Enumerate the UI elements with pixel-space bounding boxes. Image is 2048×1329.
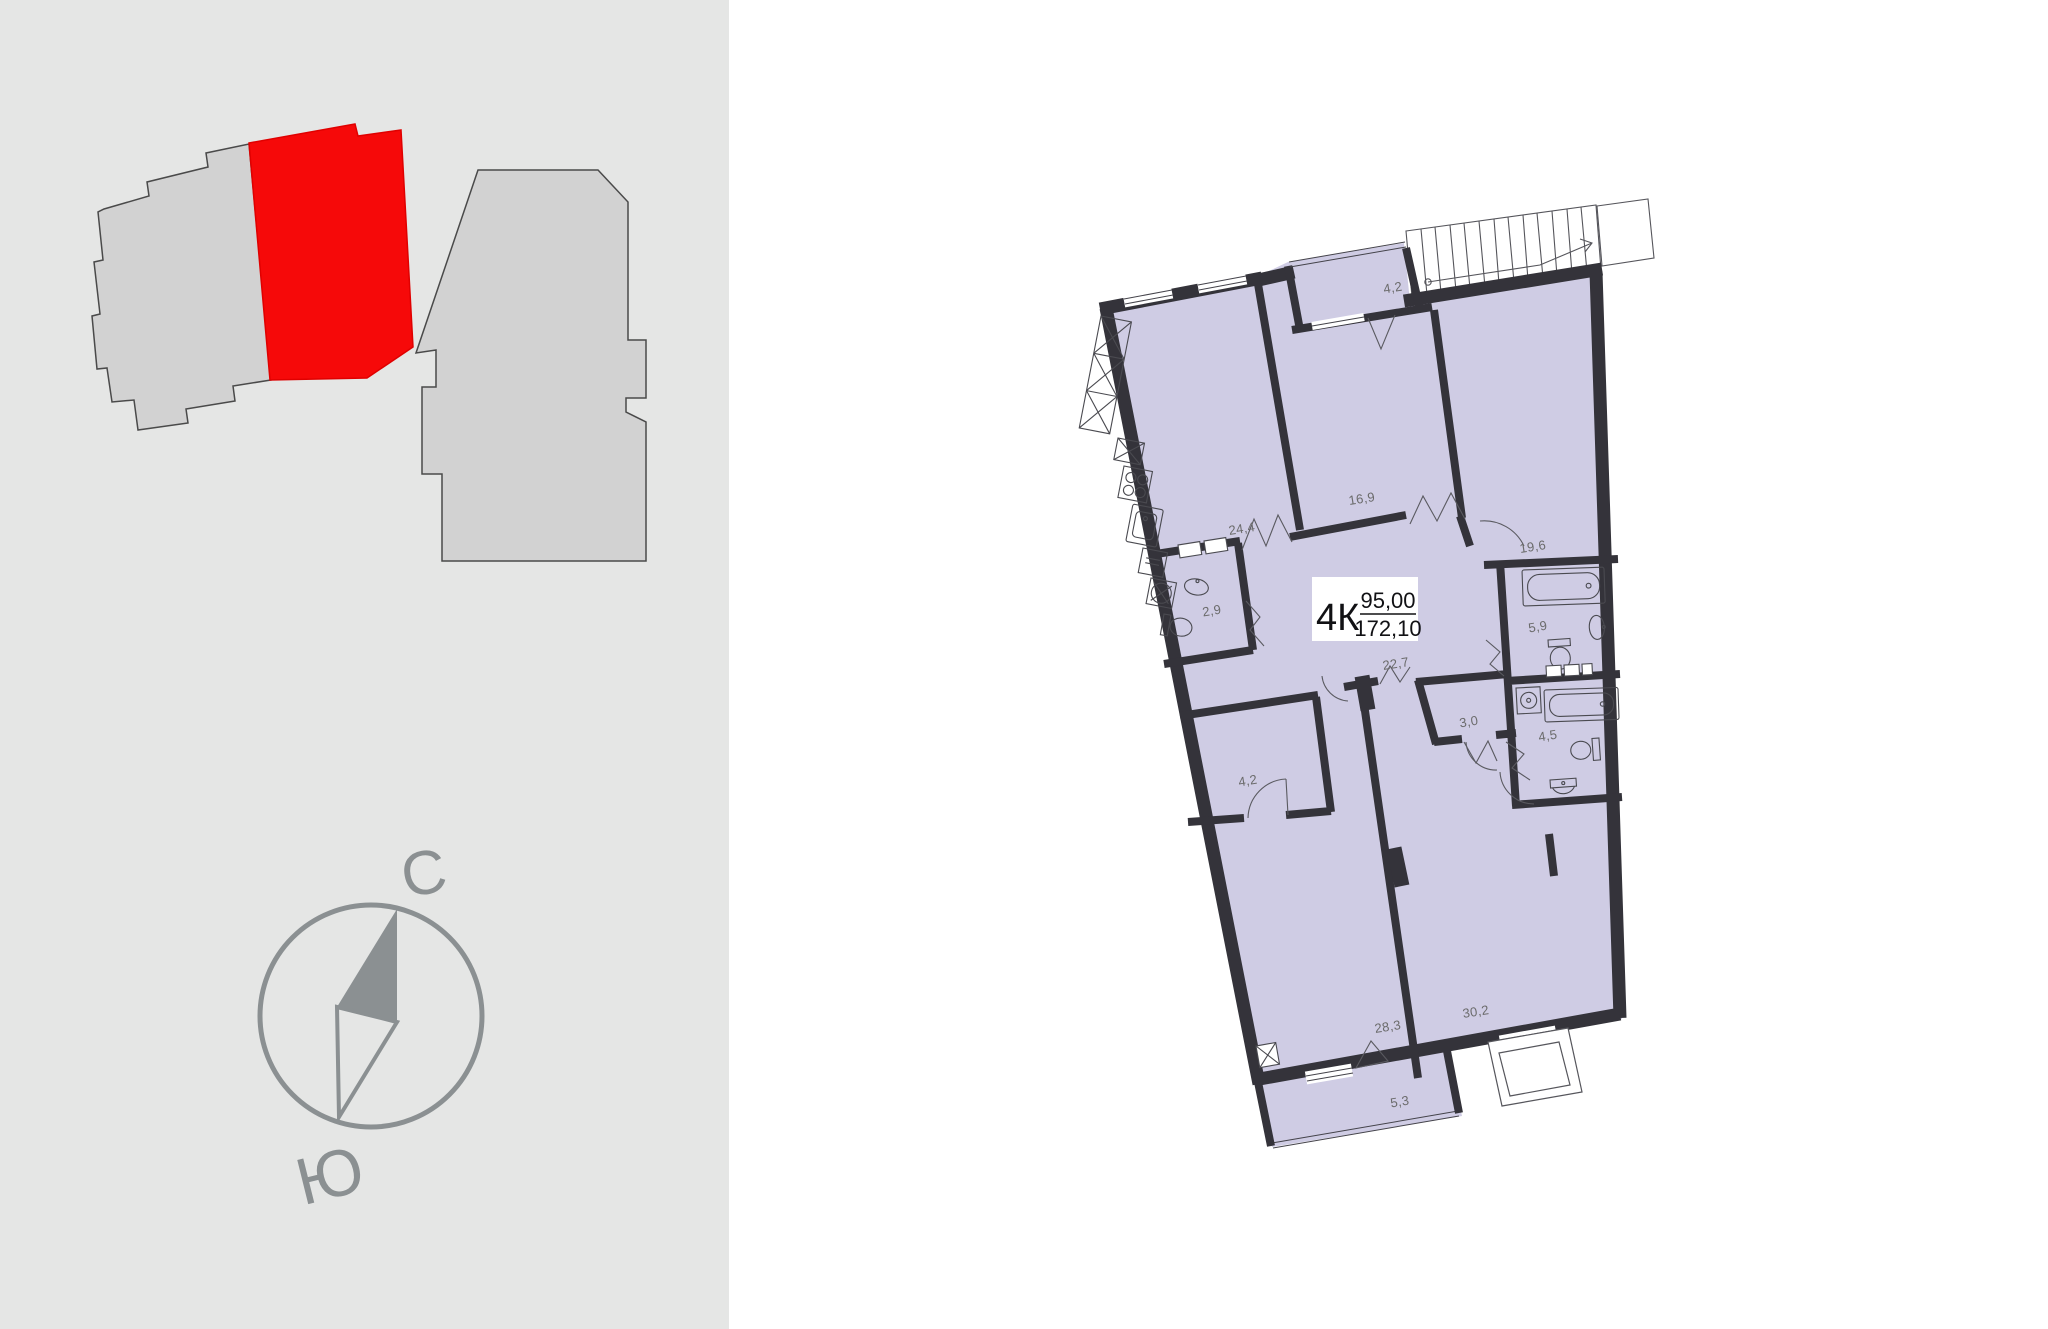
room-label-bathroom-upper: 5,9 <box>1527 618 1548 636</box>
room-label-storage: 3,0 <box>1458 713 1479 731</box>
unit-type-label: 4К <box>1316 597 1359 639</box>
page: С Ю <box>0 0 2048 1329</box>
room-label-bathroom-lower: 4,5 <box>1537 727 1558 745</box>
unit-area-total: 172,10 <box>1354 616 1421 641</box>
wc-shelf-right <box>1204 538 1228 554</box>
unit-area-living: 95,00 <box>1360 588 1415 613</box>
plan-canvas: С Ю <box>0 0 2048 1329</box>
shaft-box-icon <box>1256 1043 1280 1068</box>
stair-landing <box>1597 199 1654 266</box>
unit-info-badge: 4К 95,00 172,10 <box>1312 577 1422 641</box>
wc-shelf-left <box>1178 542 1202 558</box>
open-balcony-outline <box>1488 1028 1582 1106</box>
room-label-wc: 2,9 <box>1201 602 1222 620</box>
floor-plan: 4,2 16,9 24,4 19,6 2,9 5,9 22,7 3,0 4,5 … <box>1079 199 1654 1148</box>
bath-shelf-row <box>1546 664 1593 677</box>
room-label-wardrobe: 4,2 <box>1237 772 1258 790</box>
selected-unit-section[interactable] <box>249 124 413 380</box>
room-label-balcony-bottom: 5,3 <box>1389 1093 1410 1111</box>
room-label-balcony-top: 4,2 <box>1382 279 1403 297</box>
